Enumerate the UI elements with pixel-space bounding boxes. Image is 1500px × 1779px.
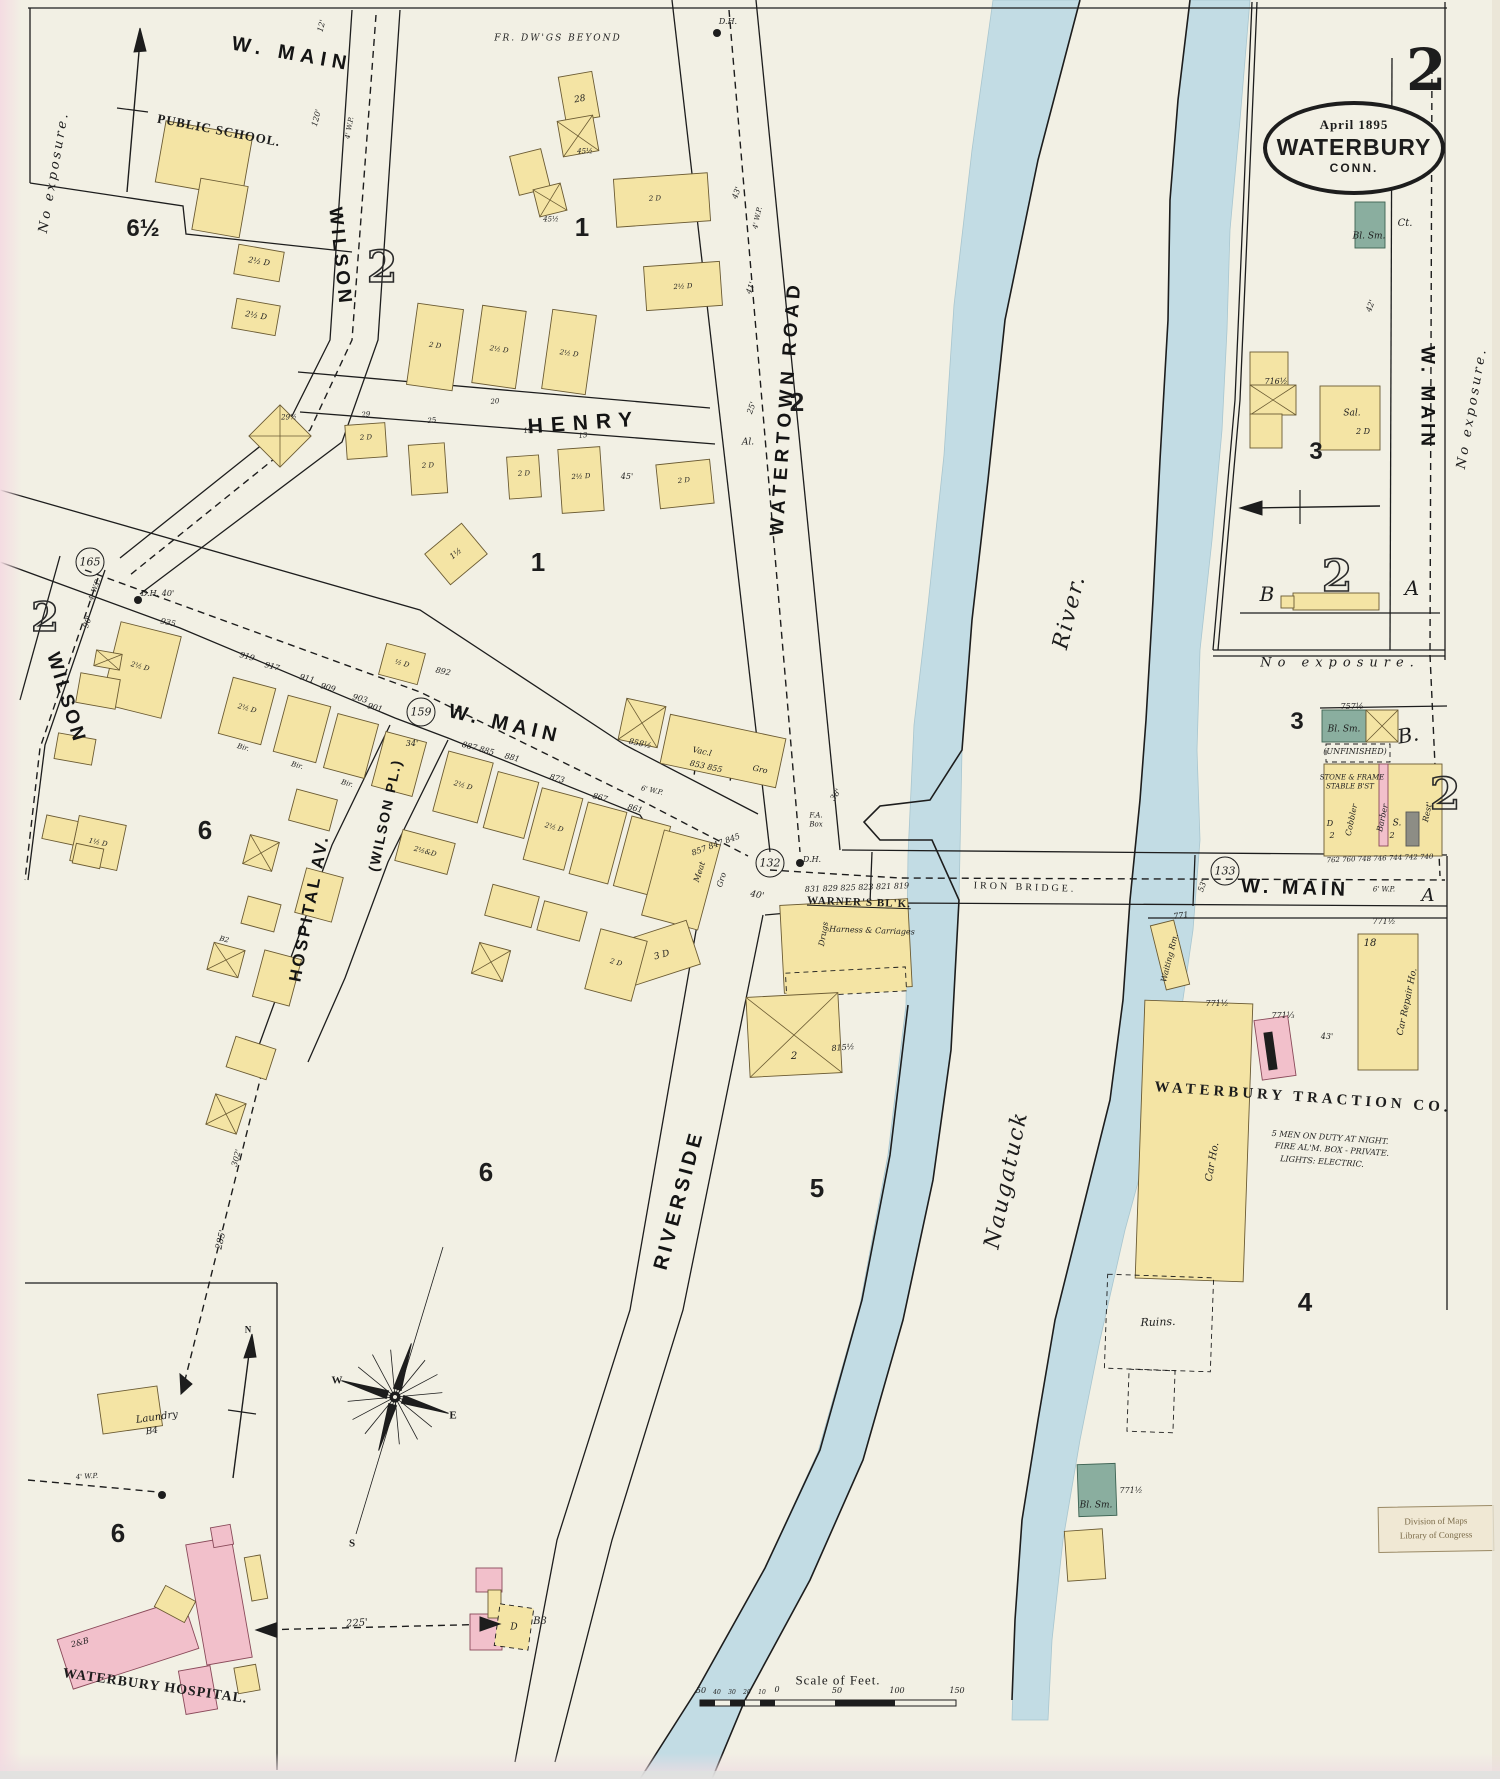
map-label: WILSON [325,206,354,307]
map-label: 50 [696,1687,706,1695]
map-label: 2 [1389,832,1394,840]
map-label: 10 [758,1690,766,1696]
map-label: Box [809,822,822,829]
map-label: 53' [1197,879,1209,893]
map-label: Ct. [1398,219,1413,229]
map-label: 302' [231,1149,243,1168]
map-label: No exposure. [1260,657,1420,670]
map-label: 2½ D [559,349,579,359]
map-label: 858½ [628,738,652,751]
map-label: 2½ D [245,310,268,322]
map-label: Ruins. [1140,1316,1175,1328]
map-label: 2&B [70,1637,90,1649]
map-label: 45½ [577,149,593,156]
map-label: 762 760 748 746 744 742 740 [1326,854,1433,865]
map-label: Bir. [236,743,250,753]
map-label: N [245,1326,252,1335]
map-label: Cobbler [1345,803,1360,836]
paper-edge-bottom-strip [0,1771,1500,1779]
map-label: D.H. [803,856,821,864]
map-label: 2 D [1356,428,1370,436]
map-label: 4' W.P. [345,116,356,139]
map-label: 771½ [1205,1000,1228,1008]
map-label: 771½ [1119,1487,1142,1495]
map-label: PUBLIC SCHOOL. [156,112,281,149]
map-label: 40 [713,1690,721,1696]
map-label: (UNFINISHED) [1323,748,1387,756]
map-label: 6' W.P. [1373,887,1395,894]
map-label: 25 [427,417,437,425]
map-label: 2 D [649,195,662,203]
map-label: D.H. [719,18,737,26]
map-label: Bl. Sm. [1080,1502,1113,1511]
map-label: (WILSON PL.) [366,757,404,872]
map-label: Waiting Rm. [1160,933,1180,983]
map-label: STONE & FRAME [1320,775,1385,782]
map-label: B3 [533,1617,547,1627]
map-label: Meat [693,861,707,883]
map-label: ½ D [394,659,410,670]
map-label: 20 [743,1690,751,1696]
map-label: 3 [1290,710,1303,734]
map-label: W [332,1376,343,1387]
map-label: 6 [198,817,212,843]
map-label: E [449,1411,456,1422]
map-label: 2 [1329,832,1334,840]
map-label: 6½ [126,217,159,241]
map-label: 2 [367,246,398,290]
map-label: 19 [523,427,533,435]
map-label: Bir. [340,779,354,789]
map-label: WILSON [43,650,89,745]
map-label: 12' [317,19,328,33]
map-label: 2 D [518,470,531,478]
map-label: Naugatuck [982,1109,1033,1251]
sheet-number: 2 [1406,36,1446,104]
map-label: 2½ D [130,661,150,673]
map-label: 2 [791,1052,797,1062]
map-label: 1½ [449,547,464,561]
map-label: 2 D [422,462,435,470]
map-label: River. [1050,572,1090,651]
map-label: STABLE B'ST [1326,784,1374,791]
map-label: 38' [829,788,843,803]
map-label: 4' W.P. [752,206,763,229]
map-label: 2½ D [489,345,509,355]
map-label: B2 [218,935,229,944]
map-label: 935 [160,617,177,628]
map-label: 120' [311,109,323,128]
map-label: 13 [578,432,588,440]
map-label: Bir. [290,761,304,771]
title-city: WATERBURY [1267,134,1441,161]
title-date: April 1895 [1267,117,1441,133]
map-label: 903 [352,693,369,705]
map-label: Al. [742,439,754,448]
map-label: Barber [1376,803,1390,832]
map-label: D [510,1624,517,1633]
map-label: 881 [504,752,521,764]
map-label: 165 [76,548,105,577]
map-label: 20 [490,398,500,406]
sanborn-map-sheet: W. MAINWILSONHENRYWATERTOWN ROADW. MAINW… [0,0,1500,1779]
map-label: HOSPITAL AV. [286,833,331,983]
map-label: 4' W.P. [76,1473,99,1482]
map-label: LIGHTS: ELECTRIC. [1280,1155,1364,1169]
map-label: 771 [1173,911,1189,921]
map-label: 43' [731,186,743,200]
map-label: 2 [1430,773,1461,817]
map-label: 29 [361,411,371,419]
map-label: 2½&D [413,846,437,859]
map-label: 43' [1321,1033,1333,1041]
map-label: 30 [728,1690,736,1696]
title-oval: April 1895 WATERBURY CONN. [1263,101,1445,195]
map-label: B4 [145,1427,158,1438]
map-label: 857 847 845 [691,833,742,858]
map-label: 2½ D [544,822,564,834]
map-label: A [1405,578,1419,598]
map-label: 861 [627,803,644,815]
map-label: 225' [346,1618,368,1629]
map-label: Drugs [818,921,830,947]
map-label: 6' W.P. [640,785,663,796]
map-label: 2½ D [571,473,591,481]
map-label: 3 [1309,440,1322,464]
map-label: 90' [82,615,94,629]
map-label: Vac.l [692,746,713,758]
library-stamp: Division of Maps Library of Congress [1378,1505,1495,1553]
map-label: B. [1396,723,1420,746]
map-label: 50 [832,1687,842,1695]
map-label: 911 [299,673,316,685]
map-label: 873 [549,773,566,785]
map-label: S [349,1539,355,1550]
map-label: 2 D [428,342,441,351]
map-label: 40' [749,890,764,901]
map-label: 132 [756,849,785,878]
map-label: 901 [367,702,384,714]
map-label: 815½ [831,1043,855,1053]
map-label: 159 [407,698,436,727]
map-label: 716½ [1264,378,1287,386]
map-label: 100 [889,1687,904,1695]
map-label-layer: W. MAINWILSONHENRYWATERTOWN ROADW. MAINW… [0,0,1500,1779]
map-label: Scale of Feet. [795,1674,880,1687]
map-label: 1 [575,214,589,240]
map-label: Car Ho. [1205,1142,1222,1182]
map-label: No exposure. [37,110,71,234]
map-label: Gro [752,765,768,776]
map-label: 771½ [1372,918,1395,926]
map-label: Sal. [1343,410,1360,419]
map-label: 6 [479,1159,493,1185]
map-label: 2 D [678,477,691,485]
map-label: 6 [111,1520,125,1546]
map-label: W. MAIN [1418,346,1437,450]
map-label: A [1422,887,1435,905]
map-label: 41' [745,281,757,295]
map-label: W. MAIN [230,34,354,75]
map-label: No exposure. [1455,346,1489,470]
map-label: 1 [531,549,545,575]
map-label: 2½ D [453,780,473,792]
map-label: F.A. [809,813,822,820]
map-label: 831 829 825 823 821 819 [805,882,910,894]
map-label: 2½ D [673,283,693,291]
map-label: Bl. Sm. [1328,726,1361,735]
map-label: 3 D [653,950,671,963]
map-label: 909 [320,682,337,694]
map-label: 28 [574,95,587,106]
map-label: 18 [1364,939,1377,949]
map-label: D [1327,820,1333,828]
map-label: Laundry [135,1410,178,1426]
map-label: Bl. Sm. [1353,233,1386,242]
map-label: 40' [162,590,174,598]
map-label: 2 [1322,555,1353,599]
map-label: 757½ [1340,703,1363,711]
map-label: 133 [1211,857,1240,886]
map-label: S. [1393,820,1402,829]
map-label: 4 [1298,1289,1312,1315]
map-label: 1½ D [88,838,108,849]
map-label: 150 [949,1687,964,1695]
map-label: 2½ D [248,256,271,268]
map-label: WATERBURY HOSPITAL. [62,1667,248,1707]
map-label: WATERBURY TRACTION CO. [1154,1080,1452,1116]
map-label: 919 [239,651,256,663]
map-label: B [1260,584,1275,604]
map-label: D.H. [141,590,159,598]
map-label: Car Repair Ho. [1396,967,1419,1036]
map-label: 45' [621,473,633,481]
map-label: 771⅓ [1271,1012,1294,1020]
map-label: 867 [592,792,609,804]
map-label: 29½ [281,415,297,422]
title-state: CONN. [1267,161,1441,175]
stamp-line2: Library of Congress [1379,1527,1493,1543]
paper-edge-right [1492,0,1500,1779]
map-label: IRON BRIDGE. [974,881,1077,895]
map-label: 887 885 [461,741,495,757]
map-label: 2½ D [237,703,257,715]
map-label: W. MAIN [1241,876,1350,900]
map-label: 2 D [360,434,373,442]
map-label: 2 [31,598,59,638]
map-label: 285' [215,1229,228,1250]
map-label: FR. DW'GS BEYOND [494,35,622,44]
map-label: 25' [746,401,758,415]
map-label: 0 [774,1686,779,1694]
map-label: Gro [716,872,728,889]
map-label: 42' [1365,299,1377,313]
map-label: 34' [406,740,418,748]
map-label: 917 [264,661,281,673]
map-label: 2 D [609,958,623,968]
map-label: 5 [810,1175,824,1201]
map-label: 2 [790,389,804,415]
map-label: 4' W.P. [88,578,102,601]
map-label: RIVERSIDE [651,1128,708,1272]
map-label: WARNER'S BL'K. [807,896,911,911]
map-label: 853 855 [689,760,723,775]
map-label: 45½ [543,217,559,224]
map-label: Harness & Carriages [829,926,915,937]
map-label: 892 [435,666,452,677]
